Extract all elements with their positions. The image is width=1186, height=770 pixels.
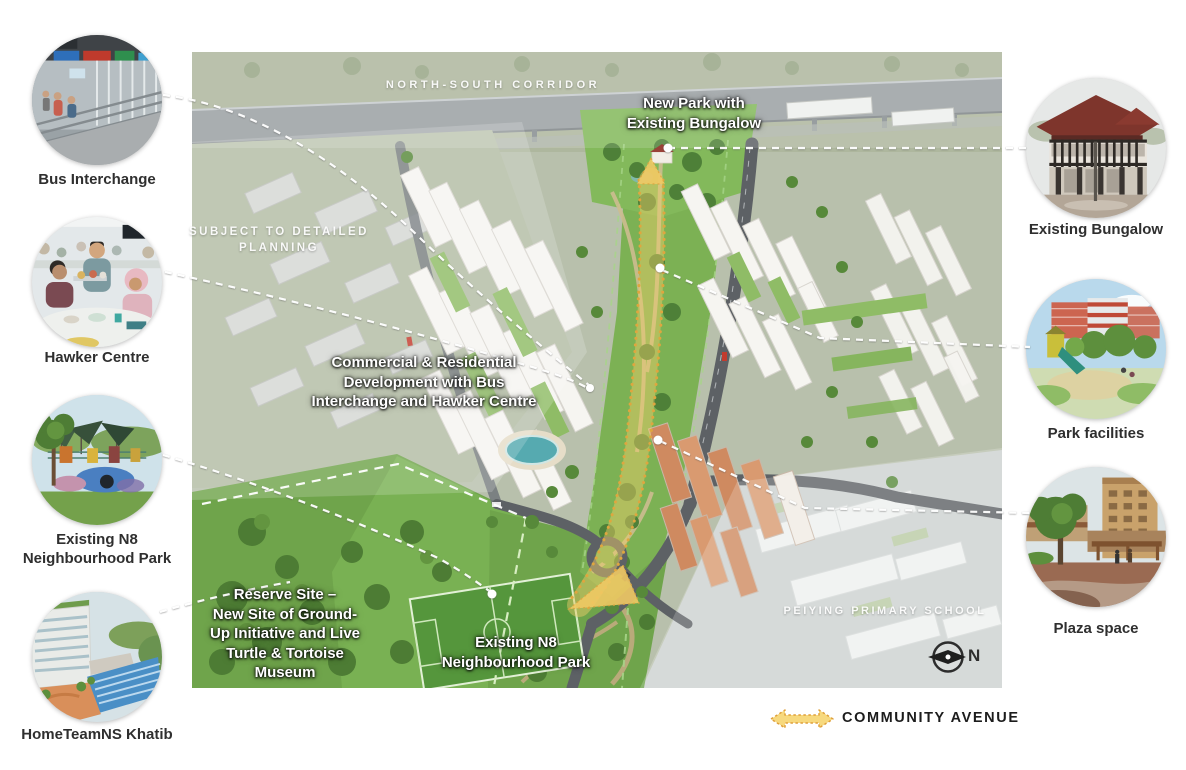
label-reserve-site: Reserve Site – New Site of Ground- Up In…	[170, 585, 400, 683]
park-facilities-photo	[1026, 279, 1166, 419]
callout-photo-existing-bungalow	[1026, 78, 1166, 218]
callout-photo-park-facilities	[1026, 279, 1166, 419]
callout-label-hawker-centre: Hawker Centre	[12, 348, 182, 367]
label-existing-n8-park: Existing N8 Neighbourhood Park	[396, 633, 636, 672]
bus-interchange-photo	[32, 35, 162, 165]
hawker-centre-photo	[32, 217, 162, 347]
callout-label-bus-interchange: Bus Interchange	[12, 170, 182, 189]
community-avenue-arrow-icon	[768, 705, 836, 733]
compass-north-label: N	[968, 646, 980, 666]
label-commercial-residential: Commercial & Residential Development wit…	[264, 353, 584, 412]
label-subject-to-planning: SUBJECT TO DETAILED PLANNING	[149, 224, 409, 256]
callout-label-hometeamns: HomeTeamNS Khatib	[12, 725, 182, 744]
plaza-space-photo	[1026, 467, 1166, 607]
hometeamns-photo	[32, 592, 162, 722]
label-new-park: New Park with Existing Bungalow	[584, 94, 804, 133]
callout-photo-hometeamns	[32, 592, 162, 722]
bungalow-photo	[1026, 78, 1166, 218]
legend-community-avenue: COMMUNITY AVENUE	[842, 710, 1020, 726]
callout-photo-hawker-centre	[32, 217, 162, 347]
callout-label-existing-bungalow: Existing Bungalow	[1001, 220, 1186, 239]
n8-park-photo	[32, 395, 162, 525]
callout-photo-existing-n8-park	[32, 395, 162, 525]
callout-photo-plaza-space	[1026, 467, 1166, 607]
callout-label-existing-n8-park: Existing N8 Neighbourhood Park	[12, 530, 182, 568]
callout-label-plaza-space: Plaza space	[1001, 619, 1186, 638]
masterplan-infographic: { "map": { "labels": { "north_south_corr…	[0, 0, 1186, 770]
callout-label-park-facilities: Park facilities	[1001, 424, 1186, 443]
label-peiying-school: PEIYING PRIMARY SCHOOL	[735, 603, 1035, 619]
label-north-south-corridor: NORTH-SOUTH CORRIDOR	[293, 77, 693, 93]
callout-photo-bus-interchange	[32, 35, 162, 165]
